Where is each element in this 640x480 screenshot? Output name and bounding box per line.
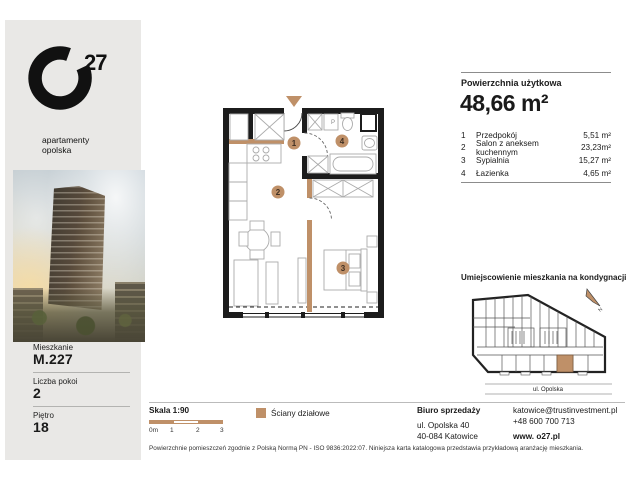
svg-text:2: 2	[276, 188, 281, 197]
room-row: 2 Salon z aneksem kuchennym 23,23m²	[461, 142, 611, 155]
scale-tick: 0m	[149, 427, 158, 434]
floor-plan: P 1 2 3 4	[215, 88, 395, 328]
unit-number: M.227	[33, 352, 130, 367]
scale-bar	[149, 420, 223, 424]
svg-text:3: 3	[341, 264, 346, 273]
room-name: Salon z aneksem kuchennym	[476, 139, 581, 157]
room-no: 1	[461, 131, 476, 140]
room-name: Sypialnia	[476, 156, 579, 165]
brand-logo: 27	[18, 32, 133, 132]
logo-number: 27	[84, 50, 107, 75]
svg-text:4: 4	[340, 137, 345, 146]
sink	[362, 136, 377, 150]
street-label: ul. Opolska	[533, 387, 564, 393]
usable-area-label: Powierzchnia użytkowa	[461, 78, 562, 88]
room-area: 15,27 m²	[579, 156, 611, 165]
room-area: 23,23m²	[581, 143, 611, 152]
hall-wardrobe	[255, 114, 284, 140]
scale-bar-segment	[149, 420, 174, 424]
shelf-box	[308, 114, 322, 130]
north-label: N	[597, 306, 604, 313]
divider	[33, 372, 130, 373]
logo-ring-icon	[35, 53, 85, 103]
building-photo	[13, 170, 145, 342]
scale-bar-segment	[174, 420, 199, 424]
sales-office-title: Biuro sprzedaży	[417, 405, 480, 416]
rooms-count: 2	[33, 386, 130, 401]
divider	[33, 406, 130, 407]
catalog-sheet: 27 apartamenty opolska Mieszkanie M.227 …	[0, 0, 640, 480]
usable-area-value: 48,66 m²	[460, 90, 548, 117]
entrance-door-arc	[284, 113, 302, 131]
partition-wall-legend-label: Ściany działowe	[271, 409, 330, 418]
entry-closet	[230, 114, 248, 140]
unit-info: Mieszkanie M.227 Liczba pokoi 2 Piętro 1…	[33, 343, 130, 435]
contact-website[interactable]: www. o27.pl	[513, 431, 617, 442]
bed	[324, 236, 377, 303]
disclaimer-text: Powierzchnie pomieszczeń zgodnie z Polsk…	[149, 445, 583, 452]
brand-tagline: apartamenty opolska	[42, 135, 89, 155]
room-no: 2	[461, 143, 476, 152]
contact-email[interactable]: katowice@trustinvestment.pl	[513, 405, 617, 416]
sofa	[234, 260, 278, 306]
bathroom-door-arc	[305, 133, 328, 156]
kitchen-counter	[229, 144, 281, 220]
unit-field-label: Liczba pokoi	[33, 377, 130, 386]
dryer-label: P	[331, 120, 335, 126]
sales-office-block: Biuro sprzedaży ul. Opolska 40 40-084 Ka…	[417, 405, 480, 442]
contact-phone: +48 600 700 713	[513, 416, 617, 427]
room-row: 3 Sypialnia 15,27 m²	[461, 154, 611, 167]
divider	[461, 182, 611, 183]
divider	[149, 402, 625, 403]
tv-unit	[298, 258, 306, 303]
room-no: 3	[461, 156, 476, 165]
dining-table	[239, 221, 280, 259]
unit-location-highlight	[557, 355, 573, 372]
svg-text:1: 1	[292, 139, 297, 148]
partition-wall-legend-swatch	[256, 408, 266, 418]
scale-bar-segment	[198, 420, 223, 424]
room-row: 4 Łazienka 4,65 m²	[461, 167, 611, 180]
bedroom-wardrobe	[313, 180, 373, 197]
sidebar: 27 apartamenty opolska Mieszkanie M.227 …	[5, 20, 141, 460]
sales-office-address2: 40-084 Katowice	[417, 431, 480, 442]
key-plan: N ul. Opolska	[452, 284, 640, 406]
room-list: 1 Przedpokój 5,51 m² 2 Salon z aneksem k…	[461, 129, 611, 179]
toilet	[341, 113, 354, 131]
room-area: 4,65 m²	[583, 169, 611, 178]
scale-tick: 3	[220, 427, 224, 434]
contact-block: katowice@trustinvestment.pl +48 600 700 …	[513, 405, 617, 442]
north-arrow-icon: N	[586, 289, 604, 314]
divider	[461, 72, 611, 73]
shaft	[361, 114, 376, 131]
brand-tagline-line2: opolska	[42, 145, 89, 155]
room-name: Łazienka	[476, 169, 583, 178]
brand-tagline-line1: apartamenty	[42, 135, 89, 145]
bathtub	[330, 154, 376, 174]
scale-tick: 2	[196, 427, 200, 434]
scale-label: Skala 1:90	[149, 406, 189, 415]
bedroom-door-arc	[310, 198, 332, 220]
floor-number: 18	[33, 420, 130, 435]
room-no: 4	[461, 169, 476, 178]
sales-office-address1: ul. Opolska 40	[417, 420, 480, 431]
scale-tick: 1	[170, 427, 174, 434]
washing-machine	[308, 156, 328, 173]
room-area: 5,51 m²	[583, 131, 611, 140]
city-skyline	[13, 288, 145, 342]
entrance-arrow-icon	[286, 96, 302, 107]
key-plan-title: Umiejscowienie mieszkania na kondygnacji	[461, 273, 626, 282]
